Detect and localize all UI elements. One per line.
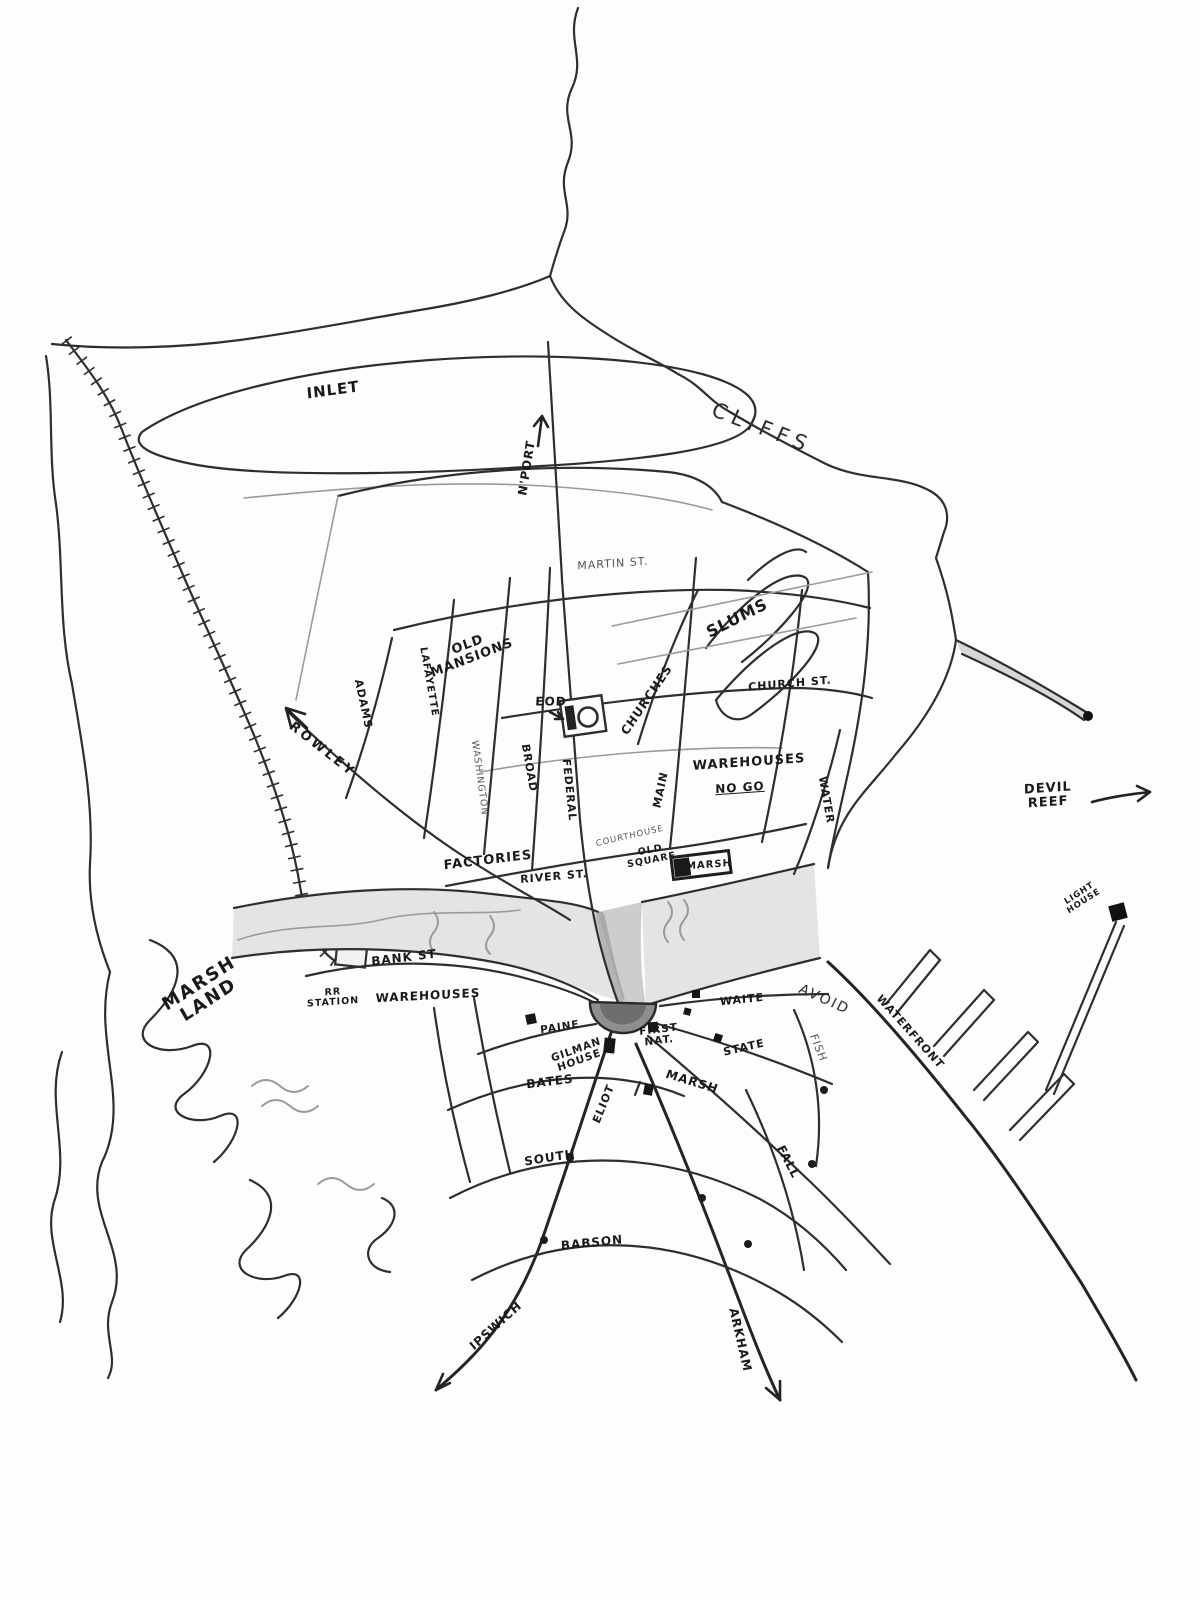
main-street	[670, 558, 696, 848]
marsh-meander-3	[51, 1052, 63, 1322]
mid-cross-street	[480, 748, 782, 772]
slums-faint-line-1	[612, 572, 872, 626]
upper-stream	[550, 8, 578, 276]
eliot-corner-building	[643, 1083, 654, 1095]
railroad-line	[66, 340, 340, 964]
railroad-ties	[66, 340, 340, 964]
lighthouse-jetty	[1046, 922, 1124, 1094]
marsh-refinery-dark-wing	[673, 857, 691, 877]
grid-west-boundary	[296, 496, 338, 700]
river-fill-east	[642, 864, 820, 1006]
northeast-boundary	[722, 502, 869, 868]
pier-3	[974, 1032, 1038, 1100]
street-intersection-dot	[540, 1236, 548, 1244]
eliot-building-tick	[635, 1082, 640, 1095]
pier-4	[1010, 1074, 1074, 1140]
waterfront-street	[828, 962, 1136, 1380]
broad-street	[532, 568, 550, 870]
pier-1	[886, 950, 940, 1014]
arkham-road	[636, 1044, 780, 1400]
cliffs-coastline	[678, 374, 956, 640]
churches-diagonal-street	[638, 590, 698, 744]
marsh-meander-2	[240, 1180, 301, 1318]
waite-building-2	[683, 1007, 692, 1016]
breakwater-tip	[1083, 711, 1093, 721]
adams-street-north	[346, 638, 392, 798]
marsh-coast	[97, 972, 117, 1378]
intersection-dots	[540, 1086, 828, 1248]
coastline-group	[46, 8, 956, 972]
devil-reef-arrow-icon	[1092, 786, 1150, 802]
waite-street	[660, 994, 828, 1006]
rowley-arrow-icon	[286, 708, 307, 728]
marsh-wavelets-1	[252, 1080, 318, 1112]
lafayette-street-south	[474, 998, 510, 1172]
lafayette-street-north	[424, 600, 454, 838]
babson-street	[472, 1245, 842, 1342]
state-street	[658, 1024, 832, 1084]
water-street	[794, 730, 840, 874]
hand-drawn-town-map: { "map": { "description": "Hand-drawn pe…	[0, 0, 1200, 1600]
river-fill-west	[232, 889, 624, 1002]
paine-street	[478, 1024, 596, 1054]
nport-arrow-icon	[534, 416, 548, 446]
gilman-house-building	[603, 1038, 616, 1054]
marsh-land-group	[51, 940, 394, 1378]
inlet-outline	[139, 356, 756, 473]
marsh-meander-1	[143, 940, 238, 1162]
street-intersection-dot	[566, 1154, 574, 1162]
first-national-building	[648, 1022, 659, 1033]
slums-scribble-2	[716, 631, 818, 719]
marsh-wavelets-2	[318, 1178, 374, 1190]
marsh-street	[648, 1036, 890, 1264]
coast-upper-left	[52, 276, 550, 347]
river-group	[232, 864, 820, 1006]
street-intersection-dot	[820, 1086, 828, 1094]
railroad-group	[66, 340, 367, 968]
coast-below-breakwater	[828, 640, 956, 868]
river-street	[446, 824, 806, 886]
street-intersection-dot	[698, 1194, 706, 1202]
map-canvas	[0, 0, 1200, 1600]
slums-faint-line-2	[618, 618, 856, 664]
slums-scribbles-group	[612, 550, 872, 720]
waite-building-1	[692, 990, 700, 998]
pier-2	[934, 990, 994, 1056]
paine-building	[525, 1013, 537, 1025]
washington-street	[484, 578, 510, 854]
south-grid-group	[306, 962, 1136, 1400]
street-intersection-dot	[808, 1160, 816, 1168]
south-street	[450, 1161, 846, 1271]
street-intersection-dot	[744, 1240, 752, 1248]
west-shoreline	[46, 356, 110, 972]
adams-street-south	[434, 1008, 470, 1182]
fall-street	[746, 1090, 804, 1270]
east-street	[762, 590, 802, 842]
fish-street	[794, 1010, 819, 1166]
lighthouse-building	[1108, 902, 1128, 922]
inner-shore-line	[244, 484, 712, 510]
marsh-s-curve	[368, 1198, 394, 1272]
